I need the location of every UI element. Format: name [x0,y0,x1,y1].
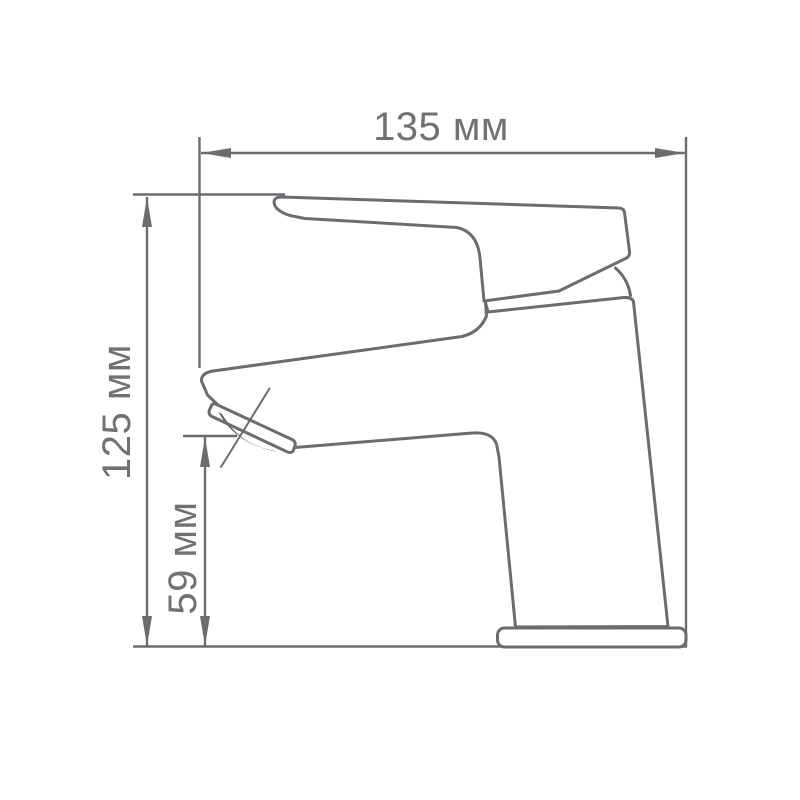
dim-arrow-spout-top [200,437,210,467]
dim-arrow-width-right [655,148,685,158]
dim-arrow-spout-bottom [200,616,210,646]
dim-arrow-height-top [142,197,152,227]
faucet-dimension-diagram: 135 мм 125 мм 59 мм [0,0,800,800]
handle-lever-outline [274,197,629,301]
dim-arrow-height-bottom [142,616,152,646]
height-dimension-label: 125 мм [95,344,139,480]
technical-drawing-canvas: 135 мм 125 мм 59 мм [0,0,800,800]
width-dimension-label: 135 мм [373,105,509,149]
spout-height-dimension-label: 59 мм [161,501,205,614]
spout-body-outline [201,297,668,627]
faucet-drawing [133,197,687,647]
cartridge-dome-curve [616,268,631,296]
dim-arrow-width-left [201,148,231,158]
base-plate [498,628,687,647]
